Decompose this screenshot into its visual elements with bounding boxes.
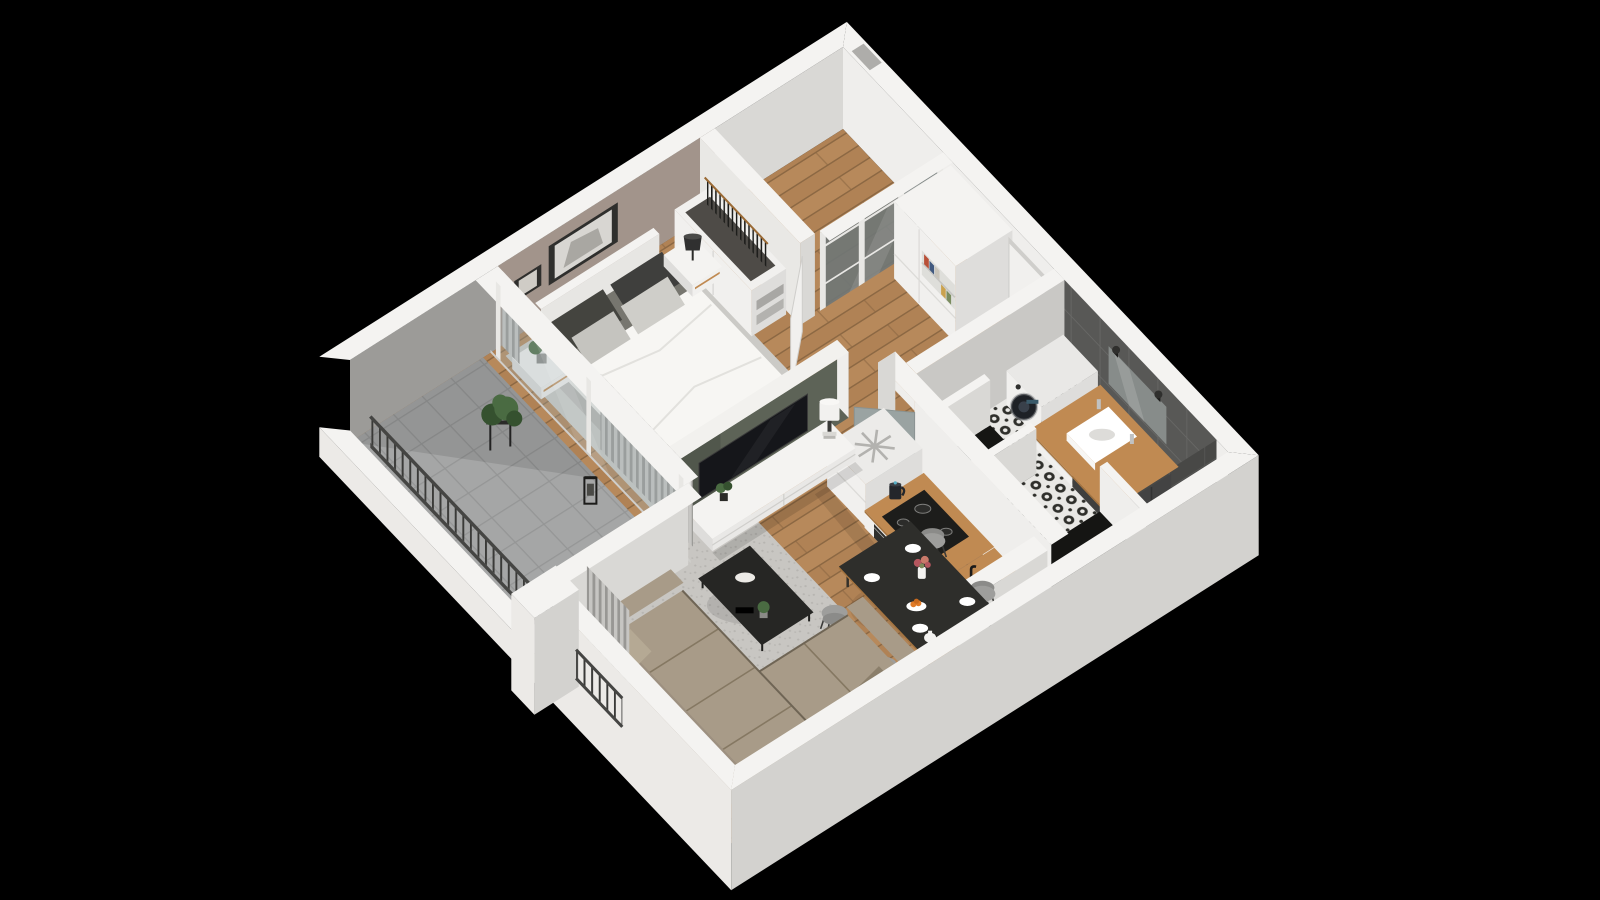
- glass-frame-right: [820, 229, 826, 311]
- plate-1: [905, 544, 921, 553]
- sink-basin: [1089, 429, 1115, 441]
- pier: [511, 566, 579, 715]
- tv-stand-lamp: [820, 398, 840, 439]
- faucet-left: [1097, 399, 1101, 409]
- floorplan-render: [0, 0, 1600, 900]
- washer-knob: [1016, 384, 1021, 389]
- washer-display: [1026, 400, 1038, 404]
- ct-tray: [735, 573, 755, 583]
- sconce-right-icon: [1154, 391, 1162, 399]
- hob-ring-1: [915, 504, 931, 513]
- plate-4: [912, 624, 928, 633]
- glasswall-mullion2: [586, 377, 591, 456]
- sconce-left-icon: [1112, 346, 1120, 354]
- plate-2: [959, 597, 975, 606]
- plate-3: [864, 573, 880, 582]
- faucet-right: [1130, 434, 1134, 444]
- glasswall-mullion1: [496, 281, 501, 361]
- ct-book: [736, 607, 754, 613]
